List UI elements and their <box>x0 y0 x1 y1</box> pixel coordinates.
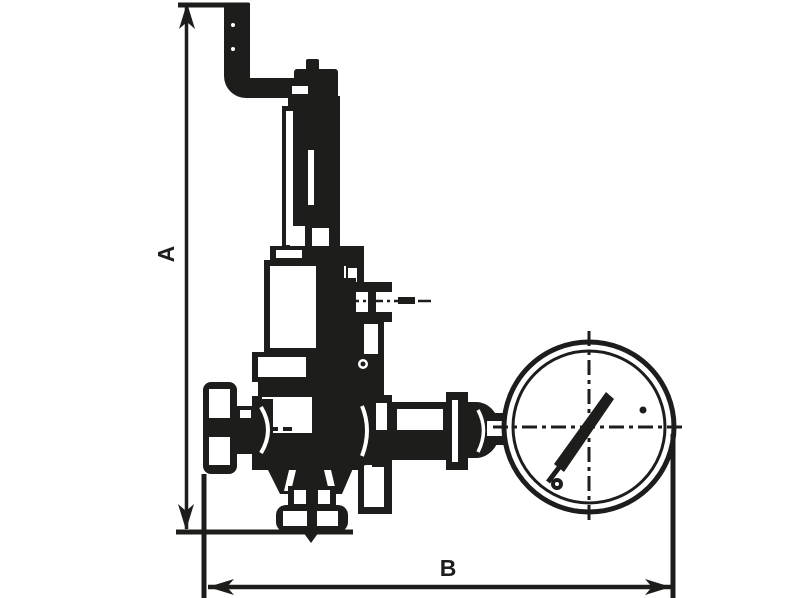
cap-highlight <box>292 86 308 94</box>
spring-bonnet <box>282 106 340 252</box>
gauge-connection-pipe <box>352 390 505 470</box>
drain-cap-highlight <box>283 511 307 526</box>
drain-nut-highlight <box>318 490 330 504</box>
adjusting-cap <box>288 59 340 108</box>
union-nut-highlight <box>209 437 230 465</box>
gauge-needle <box>554 392 614 472</box>
body-right-foot-highlight <box>364 465 384 507</box>
bonnet-highlight <box>286 111 293 245</box>
drain-nut-highlight <box>294 490 306 504</box>
pipe-highlight-dot <box>231 23 235 27</box>
drain-tip <box>303 532 319 543</box>
body-tier-1-highlight <box>258 357 306 377</box>
outlet-bell <box>352 390 374 470</box>
dimension-b-label: B <box>440 555 457 581</box>
down-leg-bolt-center <box>361 362 366 367</box>
vent-pipe <box>224 3 305 98</box>
down-leg-highlight <box>364 324 378 354</box>
pressure-gauge <box>493 331 685 523</box>
pipe-highlight-dot <box>231 47 235 51</box>
needle-pivot-hole <box>555 482 559 486</box>
connection-pipe-highlight <box>397 409 443 430</box>
union-nut-highlight <box>209 389 230 418</box>
housing-flange-highlight <box>276 250 302 258</box>
drain-cap-highlight <box>317 511 338 526</box>
vent-pipe-outline <box>224 3 305 98</box>
dial-mark-dot <box>640 407 647 414</box>
valve-technical-drawing: A B <box>0 0 800 598</box>
cap-body <box>294 69 338 99</box>
inlet-neck-highlight <box>240 410 251 418</box>
valve-assembly <box>203 3 685 543</box>
dimension-a-label: A <box>153 246 179 263</box>
gauge-flange-highlight <box>452 400 458 462</box>
spring-silhouette <box>316 262 344 354</box>
drawing-canvas: A B <box>0 0 800 598</box>
body-centerline-dash <box>283 427 292 431</box>
outlet-union-highlight <box>376 403 387 430</box>
bonnet-highlight <box>308 150 314 205</box>
